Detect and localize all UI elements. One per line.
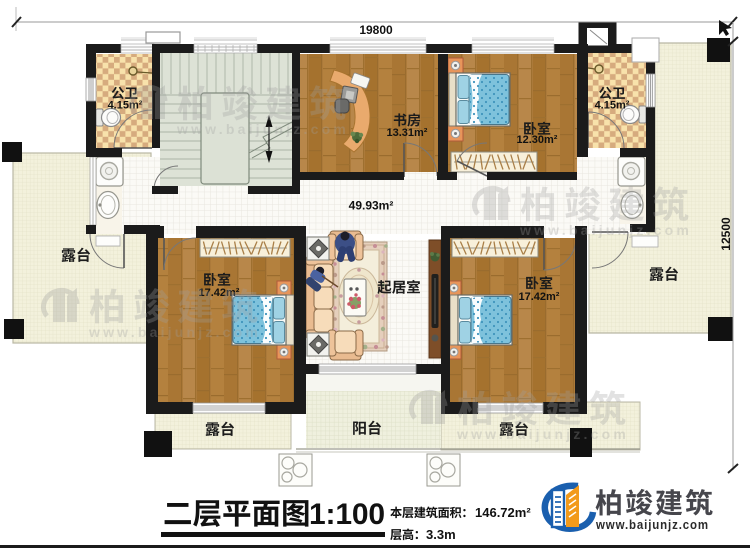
svg-text:12.30m²: 12.30m² [517,134,558,146]
svg-text:19800: 19800 [359,23,393,37]
svg-text:4.15m²: 4.15m² [595,100,630,112]
svg-text:www.baijunjz.com: www.baijunjz.com [595,517,709,532]
svg-text:12500: 12500 [719,217,733,251]
svg-text:49.93m²: 49.93m² [349,199,394,213]
svg-text:13.31m²: 13.31m² [387,127,428,139]
svg-text:3.3m: 3.3m [426,527,456,542]
svg-text:146.72m²: 146.72m² [475,505,531,520]
svg-text:17.42m²: 17.42m² [519,291,560,303]
svg-text:1:100: 1:100 [309,498,385,531]
svg-text:4.15m²: 4.15m² [108,100,143,112]
